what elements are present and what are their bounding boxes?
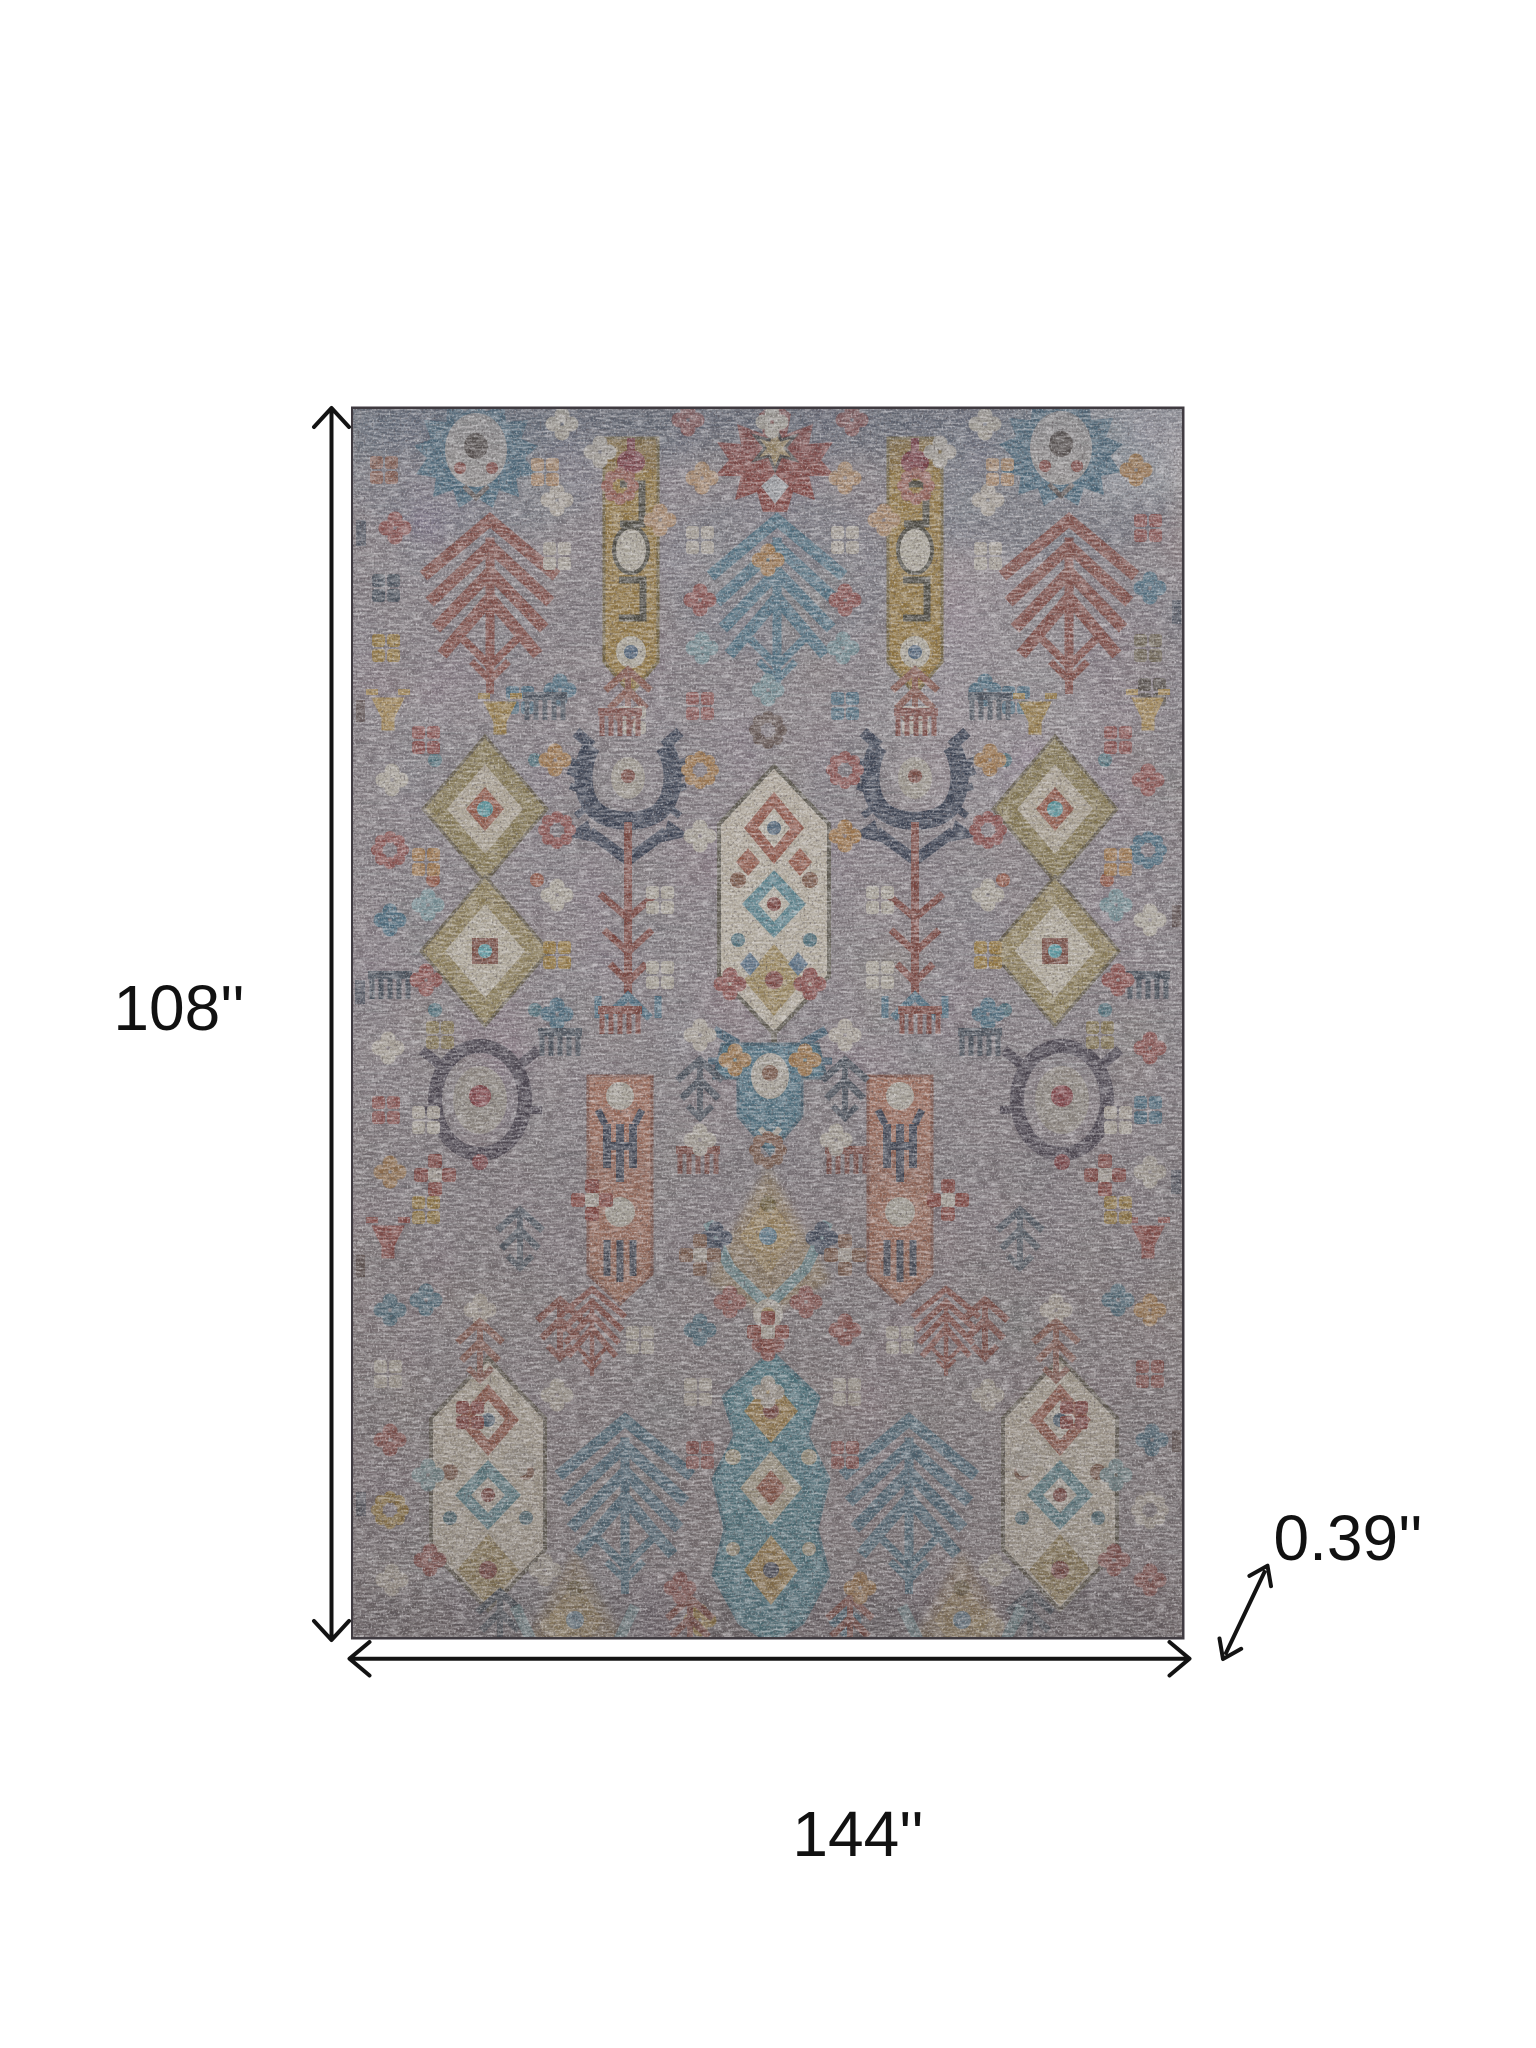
svg-text:144'': 144'' xyxy=(792,1798,923,1870)
svg-text:108'': 108'' xyxy=(113,972,244,1044)
svg-text:0.39'': 0.39'' xyxy=(1274,1502,1423,1574)
